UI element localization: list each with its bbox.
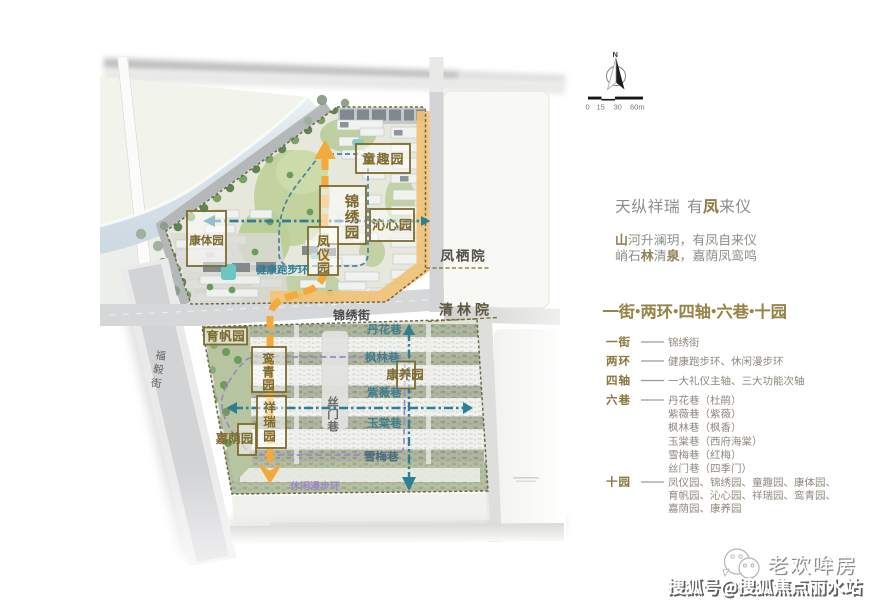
svg-text:N: N: [613, 50, 618, 59]
svg-text:30: 30: [614, 103, 622, 112]
svg-text:60m: 60m: [630, 103, 645, 112]
svg-text:0: 0: [586, 103, 590, 112]
svg-text:15: 15: [597, 103, 605, 112]
